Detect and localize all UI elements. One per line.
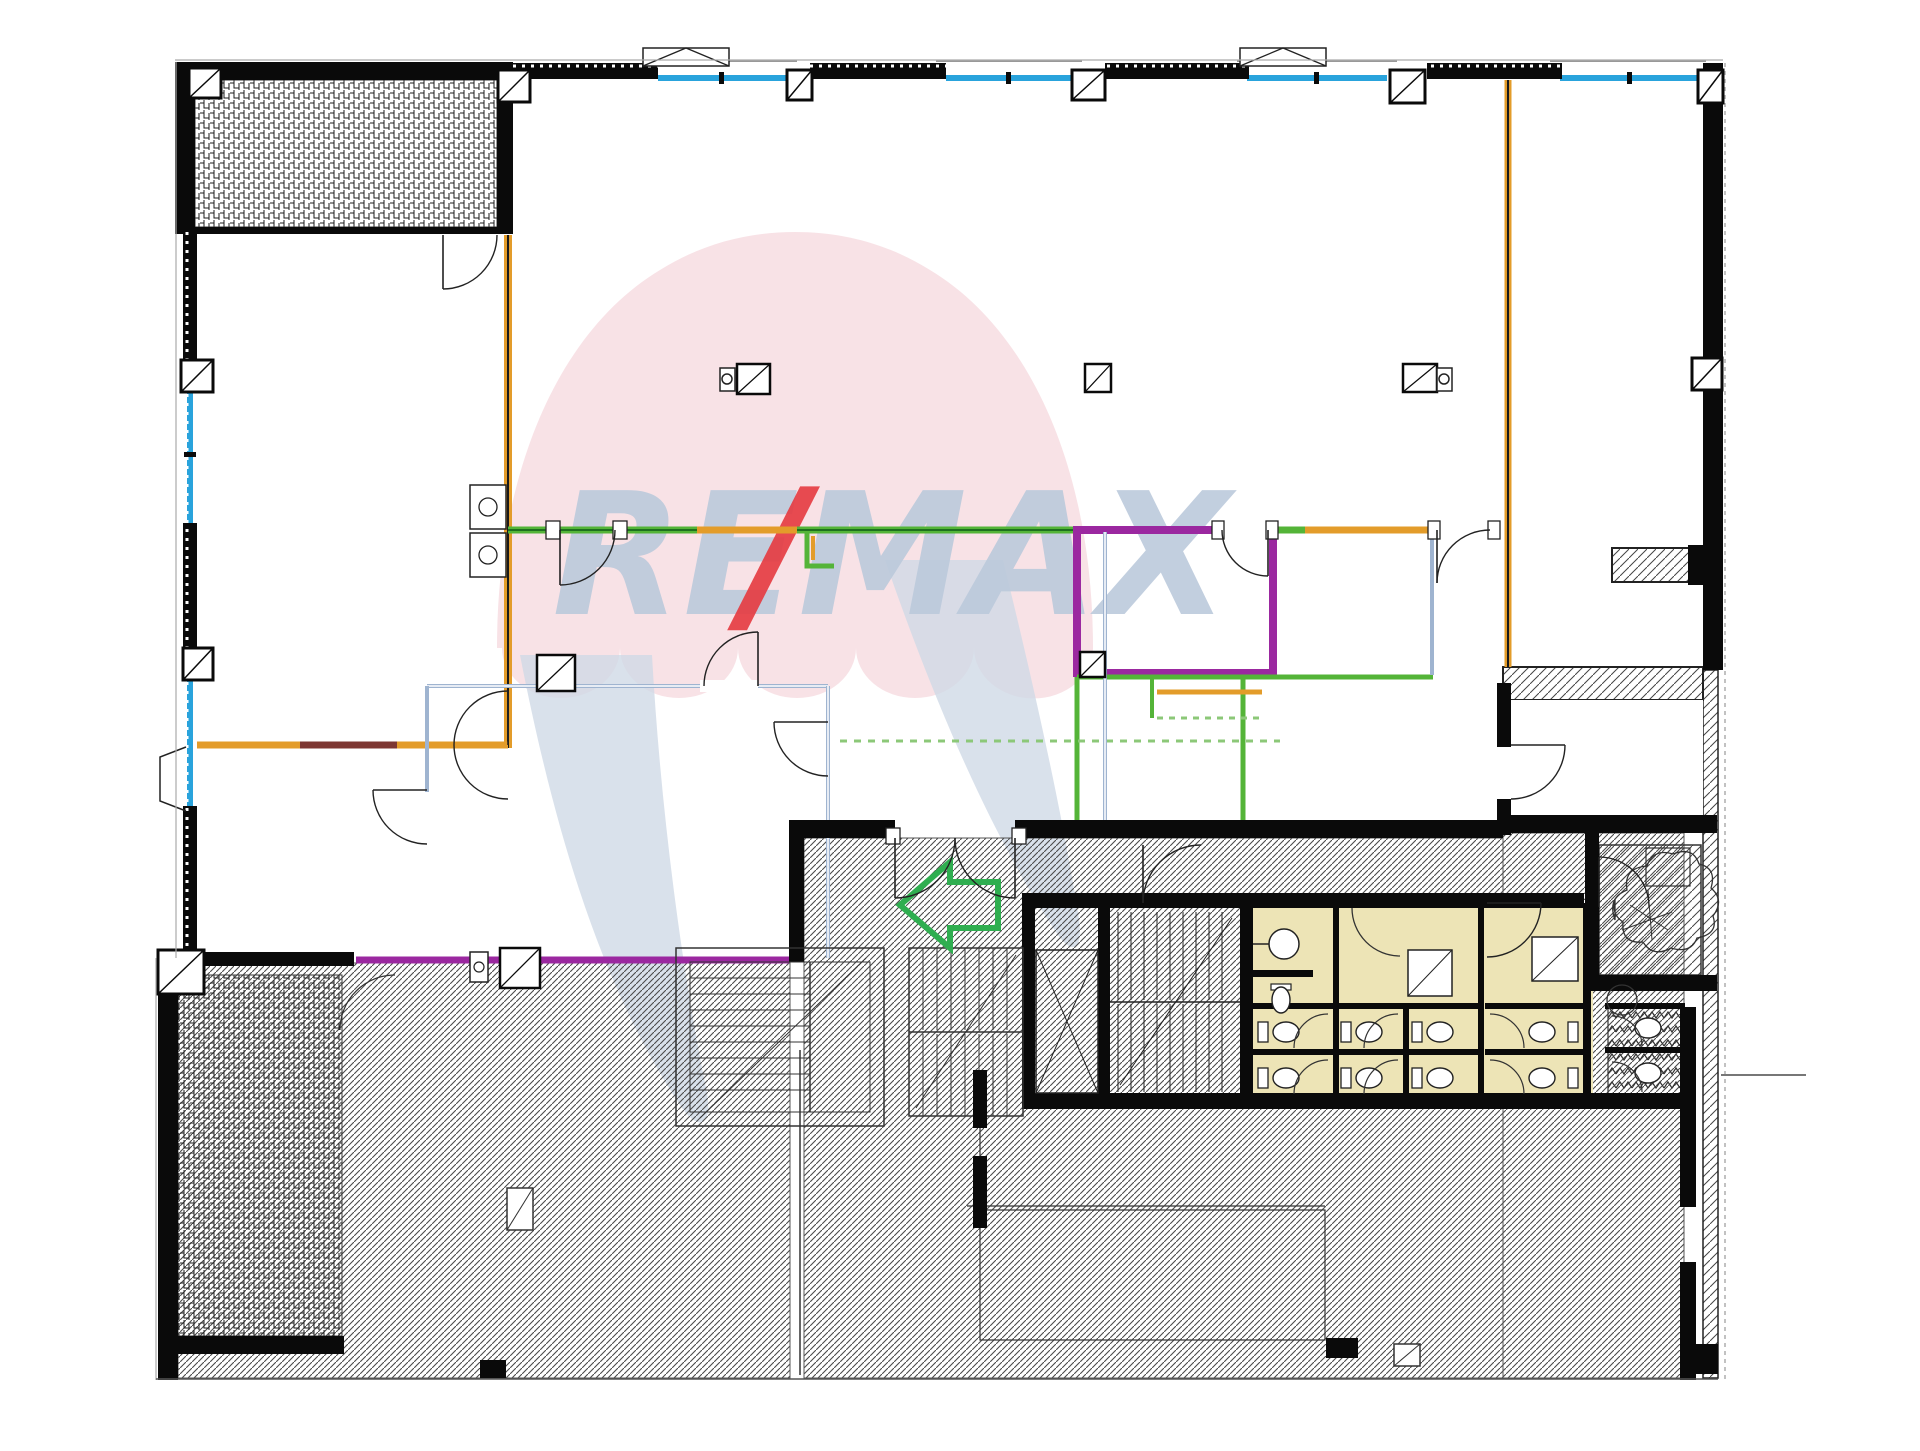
floor-plan-layers: RE/MAX bbox=[156, 48, 1806, 1380]
wall-terrace-bottom bbox=[175, 227, 507, 234]
wall-left-seg-3 bbox=[183, 806, 197, 958]
door-gap-white-1 bbox=[700, 680, 758, 692]
watermark-text-max: MAX bbox=[798, 457, 1238, 655]
sink-double-upper bbox=[470, 485, 506, 529]
toilet-5b-bowl bbox=[1635, 1063, 1661, 1083]
toilet-1b-tank bbox=[1258, 1068, 1268, 1088]
window-tick-c bbox=[1314, 72, 1319, 84]
wall-strip-right-edge bbox=[1703, 670, 1718, 1378]
wall-roomB-left-upper bbox=[1497, 683, 1511, 747]
window-tick-d bbox=[1627, 72, 1632, 84]
wall-lowerblock-top-left bbox=[789, 820, 895, 838]
door-junction-upper-arc bbox=[454, 691, 508, 745]
floor-plan-drawing: RE/MAX bbox=[0, 0, 1920, 1451]
door-jamb-black-1 bbox=[973, 1070, 987, 1128]
door-junction-lower-arc bbox=[454, 745, 508, 799]
sanitary-tickwall-2b bbox=[1336, 1049, 1478, 1055]
sanitary-tickwall-3a bbox=[1485, 1003, 1591, 1009]
toilet-3b-tank bbox=[1412, 1068, 1422, 1088]
wall-cap-bottom-2 bbox=[1326, 1338, 1358, 1358]
door-jamb-d6-left bbox=[1428, 521, 1440, 539]
sanitary-wall-v4 bbox=[1583, 903, 1591, 1095]
toilet-2a-tank bbox=[1341, 1022, 1351, 1042]
wall-band-a-cap bbox=[1688, 545, 1723, 585]
toilet-4a-bowl bbox=[1529, 1022, 1555, 1042]
sink-double-lower bbox=[470, 533, 506, 577]
door-jamb-d10-left bbox=[886, 828, 900, 844]
sanitary-tickwall-1a bbox=[1253, 1003, 1333, 1009]
window-tick-a bbox=[719, 72, 724, 84]
wall-sanitary-top bbox=[1022, 893, 1584, 908]
door-jamb-d10-right bbox=[1012, 828, 1026, 844]
bay-symbol-window-a bbox=[643, 48, 729, 66]
sanitary-block-beige-right bbox=[1450, 903, 1593, 1093]
wall-sanitary-left bbox=[1022, 908, 1035, 1098]
sanitary-partition-sink bbox=[1253, 970, 1313, 977]
wall-terrace-top bbox=[175, 62, 513, 80]
toilet-2a-bowl bbox=[1356, 1022, 1382, 1042]
toilet-5a-bowl bbox=[1635, 1018, 1661, 1038]
terrace-hatch-bottom-left bbox=[172, 975, 342, 1336]
shower-tickwall-mid bbox=[1605, 1047, 1685, 1053]
toilet-4b-bowl bbox=[1529, 1068, 1555, 1088]
wall-left-seg-1 bbox=[183, 232, 197, 364]
appliance-glyph-3 bbox=[470, 952, 488, 982]
toilet-1a-tank bbox=[1258, 1022, 1268, 1042]
sanitary-tickwall-3b bbox=[1485, 1049, 1591, 1055]
room-white-right bbox=[1511, 700, 1703, 815]
toilet-3b-bowl bbox=[1427, 1068, 1453, 1088]
shower-tickwall-top bbox=[1605, 1003, 1685, 1009]
sanitary-wall-v1 bbox=[1333, 908, 1339, 1095]
sanitary-tickwall-2a bbox=[1336, 1003, 1478, 1009]
bay-symbol-left-wall bbox=[160, 747, 186, 811]
terrace-hatch-top-left bbox=[195, 80, 497, 227]
wall-left-seg-2 bbox=[183, 523, 197, 653]
wall-garden-bottom bbox=[1585, 975, 1717, 991]
wall-corner-bottom-right bbox=[1690, 1344, 1718, 1374]
door-east-green-arc bbox=[1437, 530, 1490, 583]
door-jamb-black-2 bbox=[973, 1156, 987, 1228]
wall-lowerblock-top-right bbox=[1015, 820, 1503, 838]
window-tick-left bbox=[184, 452, 196, 457]
door-gap-purple-top bbox=[1222, 522, 1268, 538]
door-jamb-d4-left bbox=[546, 521, 560, 539]
wc-sink-circle bbox=[1269, 929, 1299, 959]
wall-left-lower bbox=[158, 958, 178, 1380]
sanitary-tickwall-1b bbox=[1253, 1049, 1333, 1055]
door-terrace-arc bbox=[443, 235, 497, 289]
wall-staircore-left bbox=[1098, 908, 1110, 1095]
toilet-4a-tank bbox=[1568, 1022, 1578, 1042]
sanitary-wall-v3 bbox=[1478, 903, 1484, 1095]
toilet-2b-bowl bbox=[1356, 1068, 1382, 1088]
wc-urinal-bowl bbox=[1272, 987, 1290, 1013]
wall-band-right-lower bbox=[1503, 667, 1703, 700]
wall-cap-bottom-1 bbox=[480, 1360, 506, 1378]
wall-upperleft-room-bottom bbox=[196, 952, 354, 966]
wall-staircore-right bbox=[1240, 908, 1253, 1095]
door-partition-v2-arc bbox=[774, 722, 828, 776]
toilet-4b-tank bbox=[1568, 1068, 1578, 1088]
wall-lowerblock-left-edge bbox=[789, 838, 804, 962]
toilet-2b-tank bbox=[1341, 1068, 1351, 1088]
wall-sanitary-bottom bbox=[1022, 1093, 1684, 1109]
wall-right-inner-a bbox=[1680, 1007, 1696, 1207]
toilet-3a-bowl bbox=[1427, 1022, 1453, 1042]
wall-dense-block-bottom bbox=[172, 1336, 344, 1354]
wall-roomB-bottom bbox=[1503, 815, 1717, 833]
toilet-3a-tank bbox=[1412, 1022, 1422, 1042]
window-tick-b bbox=[1006, 72, 1011, 84]
bay-symbol-window-c bbox=[1240, 48, 1326, 66]
floor-plan-page: RE/MAX bbox=[0, 0, 1920, 1451]
door-partition-v1-arc bbox=[373, 790, 427, 844]
